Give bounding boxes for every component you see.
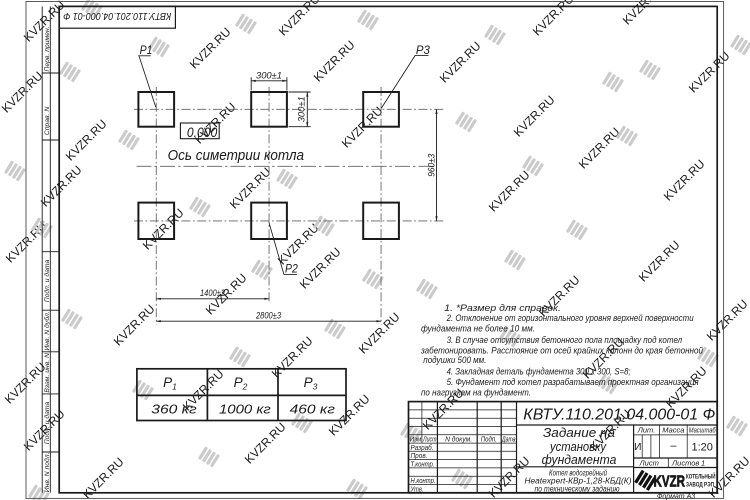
svg-text:KVZR: KVZR xyxy=(654,474,686,491)
svg-text:Подп. и дата: Подп. и дата xyxy=(43,402,51,445)
svg-text:КОТЕЛЬНЫЙ: КОТЕЛЬНЫЙ xyxy=(686,471,716,480)
svg-text:ЗАВОД РЭП: ЗАВОД РЭП xyxy=(686,482,714,489)
svg-text:Т.контр.: Т.контр. xyxy=(411,461,435,468)
svg-text:2800±3: 2800±3 xyxy=(255,310,281,320)
svg-text:Взам. инв. N: Взам. инв. N xyxy=(44,353,51,393)
svg-text:Р1: Р1 xyxy=(140,43,153,57)
svg-text:0.000: 0.000 xyxy=(187,124,218,140)
svg-text:Инв. N подл.: Инв. N подл. xyxy=(43,452,51,492)
svg-text:Утв.: Утв. xyxy=(410,486,424,493)
svg-text:фундамента не более 10 мм.: фундамента не более 10 мм. xyxy=(421,324,535,335)
svg-text:Р3: Р3 xyxy=(416,43,430,57)
svg-text:И: И xyxy=(634,442,641,453)
svg-text:N докум.: N докум. xyxy=(445,435,472,443)
svg-text:Листов: Листов xyxy=(671,459,699,468)
svg-text:фундамента: фундамента xyxy=(542,452,617,467)
svg-text:КВТУ.110.201.04.000-01 Ф: КВТУ.110.201.04.000-01 Ф xyxy=(63,10,171,22)
svg-text:4. Закладная деталь фундамента: 4. Закладная деталь фундамента 300 x 300… xyxy=(447,366,631,377)
svg-text:Лит.: Лит. xyxy=(637,426,656,435)
svg-text:подушки 500 мм.: подушки 500 мм. xyxy=(423,355,486,366)
svg-text:Пров.: Пров. xyxy=(411,453,428,460)
svg-text:Ось симетрии котла: Ось симетрии котла xyxy=(168,148,304,164)
svg-text:Н.контр.: Н.контр. xyxy=(411,478,436,485)
svg-text:Перв. примен.: Перв. примен. xyxy=(44,26,51,71)
svg-text:Масса: Масса xyxy=(662,426,684,435)
svg-text:360 кг: 360 кг xyxy=(151,403,197,417)
svg-text:Дата: Дата xyxy=(501,436,515,443)
svg-text:300±1: 300±1 xyxy=(256,70,282,80)
svg-text:Задание на: Задание на xyxy=(543,425,615,440)
svg-text:960±3: 960±3 xyxy=(426,154,436,177)
svg-text:300±1: 300±1 xyxy=(297,96,307,122)
svg-text:Лист: Лист xyxy=(639,459,659,468)
svg-text:Формат А3: Формат А3 xyxy=(657,493,695,500)
svg-text:по нагрузкам на фундамент.: по нагрузкам на фундамент. xyxy=(421,387,531,398)
svg-text:460 кг: 460 кг xyxy=(290,403,335,417)
svg-text:Изм: Изм xyxy=(410,436,422,443)
svg-text:1:20: 1:20 xyxy=(691,442,712,454)
svg-text:1: 1 xyxy=(701,459,705,468)
svg-text:КВТУ.110.201.04.000-01 Ф: КВТУ.110.201.04.000-01 Ф xyxy=(523,406,715,423)
svg-text:–: – xyxy=(670,440,677,452)
svg-text:Справ. N: Справ. N xyxy=(44,107,51,136)
svg-text:Р2: Р2 xyxy=(285,261,298,275)
svg-text:Подп.: Подп. xyxy=(481,435,497,443)
svg-text:Лист: Лист xyxy=(422,436,436,443)
svg-text:Подп. и дата: Подп. и дата xyxy=(43,260,51,303)
svg-text:Инв. N дубл.: Инв. N дубл. xyxy=(43,311,51,350)
svg-text:Разраб.: Разраб. xyxy=(411,444,434,452)
svg-text:по техническому заданию: по техническому заданию xyxy=(535,485,620,494)
svg-text:1400±2: 1400±2 xyxy=(200,288,225,298)
svg-text:Масштаб: Масштаб xyxy=(689,426,717,435)
svg-text:1000 кг: 1000 кг xyxy=(219,403,271,417)
